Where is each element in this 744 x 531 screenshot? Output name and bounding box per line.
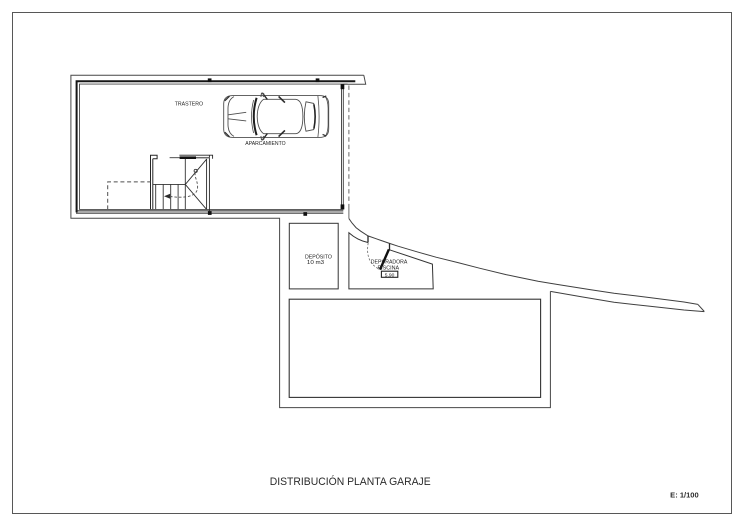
svg-text:5.90: 5.90 <box>385 272 395 278</box>
svg-text:10 m3: 10 m3 <box>307 260 324 266</box>
svg-text:E: 1/100: E: 1/100 <box>670 490 699 499</box>
svg-text:PISCINA: PISCINA <box>378 266 400 272</box>
svg-text:DISTRIBUCIÓN PLANTA GARAJE: DISTRIBUCIÓN PLANTA GARAJE <box>270 475 431 488</box>
svg-text:APARCAMIENTO: APARCAMIENTO <box>245 141 286 147</box>
svg-text:TRASTERO: TRASTERO <box>175 102 204 108</box>
